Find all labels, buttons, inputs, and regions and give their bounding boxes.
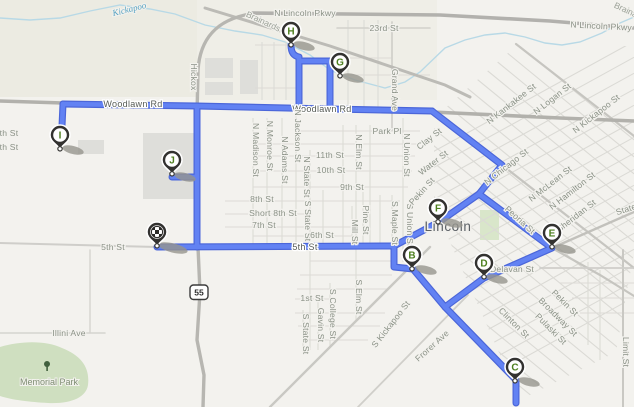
street-label: Illini Ave: [52, 328, 85, 338]
street-label: S State St: [301, 314, 311, 355]
street-label: N Union St: [402, 133, 412, 177]
street-label: S Elm St: [354, 279, 364, 314]
street-label: th St: [0, 142, 19, 152]
street-label: 5th St: [101, 242, 125, 252]
street-label: 6th St: [310, 230, 334, 240]
highway-shield: 55: [190, 285, 208, 300]
street-label: Woodlawn Rd: [103, 99, 162, 109]
pin-letter: G: [336, 58, 344, 69]
street-label: N Madison St: [251, 123, 261, 177]
street-label: N Monroe St: [265, 121, 275, 172]
street-label: Hickox: [189, 64, 199, 91]
street-label: Short 8th St: [249, 208, 297, 218]
street-label: 23rd St: [369, 23, 399, 33]
street-label: Delavan St: [490, 264, 534, 274]
street-label: 8th St: [250, 194, 274, 204]
pin-letter: F: [435, 204, 441, 215]
pin-letter: B: [408, 251, 415, 262]
street-label: 11th St: [316, 150, 344, 160]
pin-letter: D: [480, 259, 487, 270]
park-label: Memorial Park: [20, 377, 79, 387]
shield-number: 55: [194, 288, 204, 298]
street-label: 9th St: [340, 182, 364, 192]
route-map[interactable]: N Lincoln Pkwy N Lincoln Pkwy 23rd St Br…: [0, 0, 634, 407]
street-label: S Union St: [405, 203, 415, 246]
street-label: N Lincoln Pkwy: [274, 8, 336, 18]
street-label: 10th St: [317, 165, 346, 175]
pin-letter: I: [59, 131, 62, 142]
pin-letter: C: [511, 363, 518, 374]
street-label: N Elm St: [354, 134, 364, 170]
street-label: Park Pl: [372, 126, 401, 136]
street-label: 7th St: [252, 220, 276, 230]
street-label: N Jackson St: [293, 109, 303, 162]
north-district-tint: [0, 0, 197, 97]
street-label: Pine St: [361, 205, 371, 235]
street-label: Limit St: [621, 337, 631, 368]
street-label: 1st St: [300, 293, 324, 303]
pin-letter: J: [169, 156, 175, 167]
street-label: Gavin St: [316, 308, 326, 343]
map-canvas[interactable]: N Lincoln Pkwy N Lincoln Pkwy 23rd St Br…: [0, 0, 634, 407]
street-label: N State St: [302, 156, 312, 198]
street-label: Grand Ave: [390, 69, 400, 111]
pin-letter: H: [287, 27, 294, 38]
street-label: 5th St: [292, 242, 318, 252]
street-label: th St: [0, 128, 19, 138]
street-label: Mill St: [350, 220, 360, 245]
street-label: S College St: [328, 289, 338, 340]
street-label: N Adams St: [280, 136, 290, 184]
pin-letter: E: [549, 229, 556, 240]
street-label: S Maple St: [390, 201, 400, 245]
